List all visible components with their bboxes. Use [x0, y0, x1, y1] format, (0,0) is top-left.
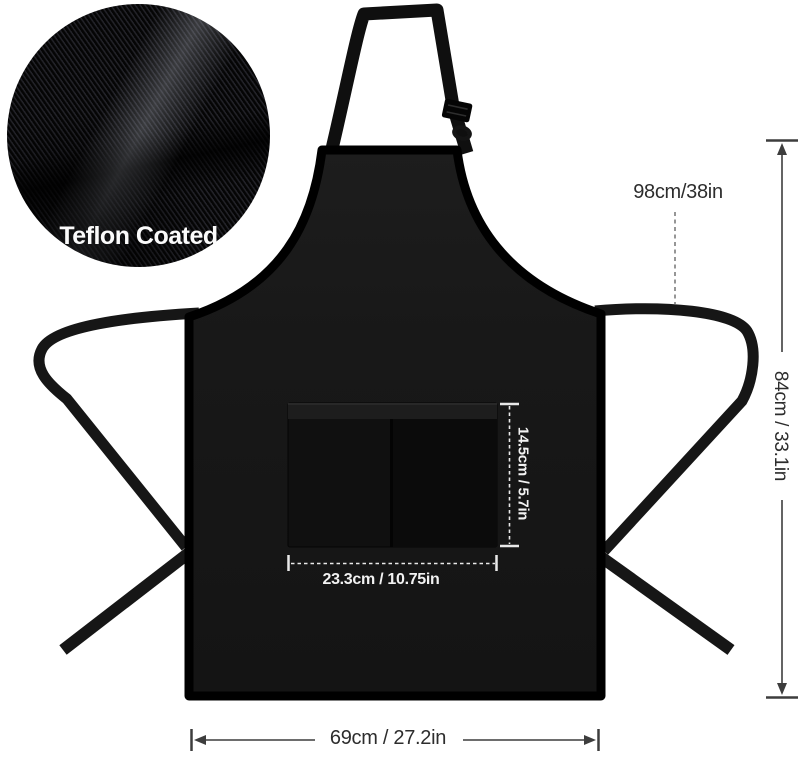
tie-strap-length-label: 98cm/38in	[598, 181, 758, 204]
strap-adjuster	[441, 98, 472, 140]
waist-tie-left-end	[63, 552, 190, 650]
neck-strap	[331, 10, 467, 153]
waist-tie-right-end	[601, 557, 731, 650]
pocket-hem	[288, 403, 497, 419]
product-diagram: Teflon Coated 98cm/38in 84cm / 33.1in 14…	[0, 0, 800, 762]
arrow-down-icon	[777, 683, 787, 695]
arrow-right-icon	[584, 735, 596, 745]
fabric-coating-label: Teflon Coated	[7, 222, 270, 251]
apron-height-label: 84cm / 33.1in	[769, 346, 791, 506]
fabric-detail-circle: Teflon Coated	[7, 4, 270, 267]
pocket-height-label: 14.5cm / 5.7in	[515, 414, 532, 534]
pocket-right-compartment	[392, 419, 497, 547]
pocket-width-label: 23.3cm / 10.75in	[301, 571, 461, 589]
apron-width-label: 69cm / 27.2in	[308, 727, 468, 750]
front-pocket	[288, 403, 497, 547]
waist-tie-left	[39, 313, 199, 547]
waist-tie-right	[595, 309, 753, 551]
strap-adjuster-buckle	[441, 98, 472, 122]
